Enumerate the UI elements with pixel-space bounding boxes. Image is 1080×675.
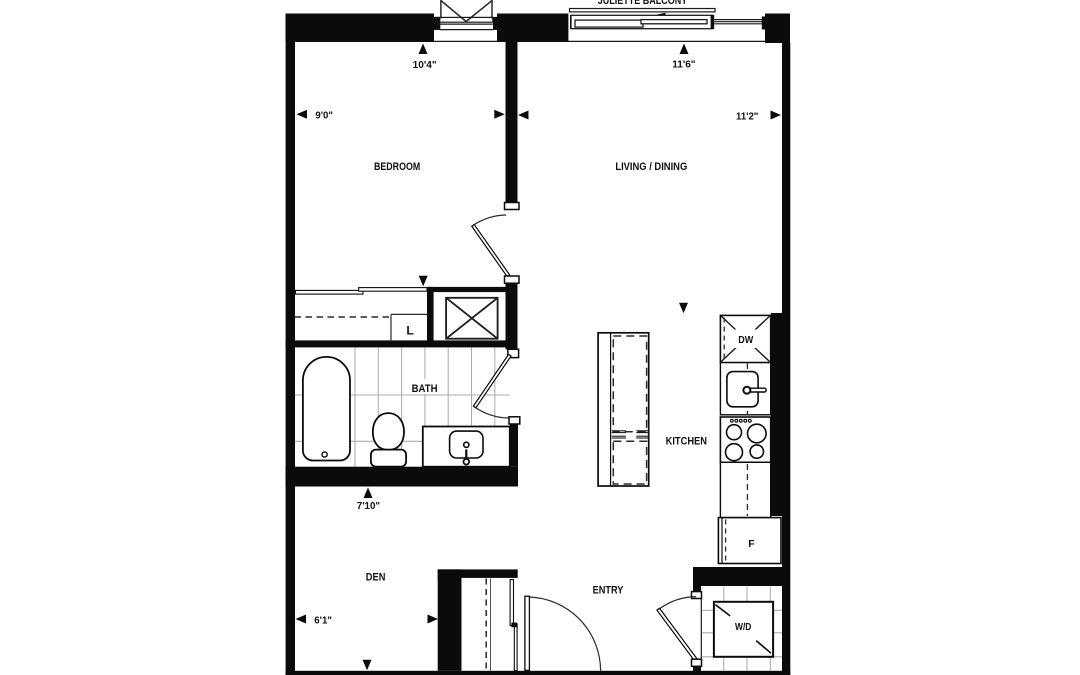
svg-text:11'2": 11'2" <box>736 110 758 122</box>
svg-text:7'10": 7'10" <box>357 500 380 512</box>
svg-text:ENTRY: ENTRY <box>593 585 624 597</box>
svg-text:F: F <box>748 538 755 550</box>
svg-text:W/D: W/D <box>735 622 752 633</box>
svg-text:DEN: DEN <box>366 571 386 583</box>
svg-text:L: L <box>406 323 413 337</box>
svg-text:LIVING / DINING: LIVING / DINING <box>615 161 687 173</box>
svg-text:11'6": 11'6" <box>672 58 695 70</box>
svg-text:BEDROOM: BEDROOM <box>374 161 420 173</box>
svg-text:JULIETTE BALCONY: JULIETTE BALCONY <box>598 0 688 7</box>
svg-text:DW: DW <box>738 334 753 346</box>
svg-text:KITCHEN: KITCHEN <box>666 435 707 447</box>
svg-text:BATH: BATH <box>412 383 438 395</box>
svg-text:10'4": 10'4" <box>413 59 437 71</box>
svg-text:9'0": 9'0" <box>315 110 333 122</box>
svg-text:6'1": 6'1" <box>314 614 332 626</box>
